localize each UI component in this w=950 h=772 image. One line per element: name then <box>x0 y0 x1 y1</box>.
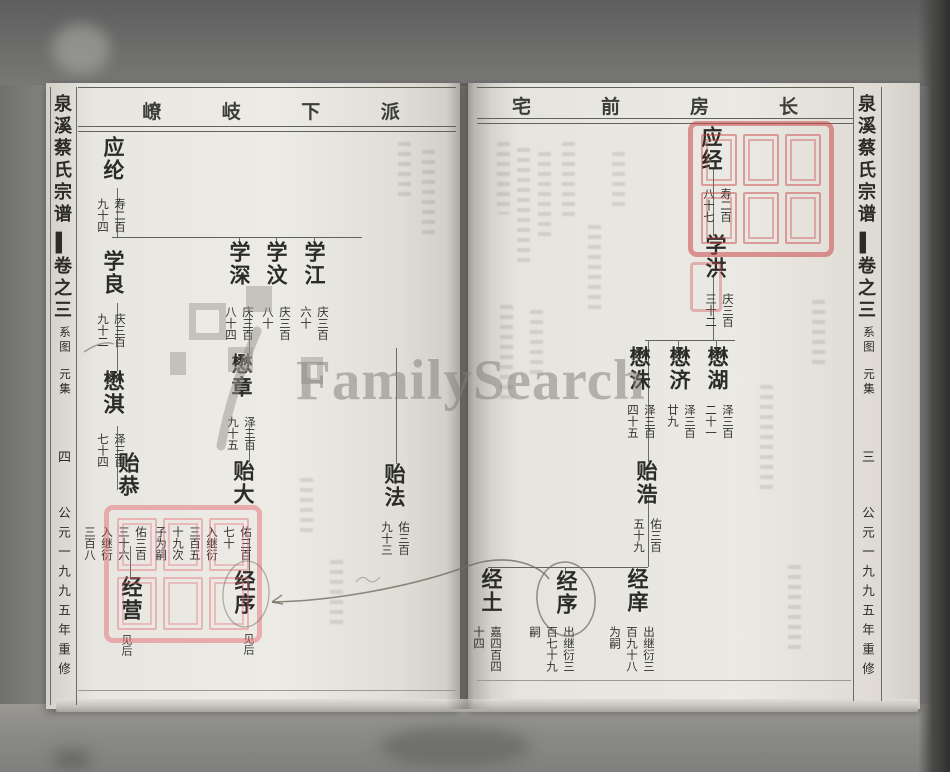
bleed-through-text <box>612 152 625 210</box>
photo-background-top <box>0 0 950 86</box>
red-archive-seal-top-right <box>688 121 834 257</box>
bleed-through-text <box>497 142 510 214</box>
bleed-through-text <box>300 478 313 538</box>
bleed-through-text <box>422 150 435 238</box>
left-page-header: 嶛 岐 下 派 <box>112 97 430 125</box>
annotation-jing-tu: 嘉四百四 十四 <box>469 626 503 684</box>
annotation-xue-shen: 庆三百 八十四 <box>221 306 255 350</box>
bleed-through-text <box>788 565 801 650</box>
left-spine-section: 系图 <box>56 326 72 355</box>
right-spine-section: 系图 <box>860 326 876 355</box>
familysearch-logo-square <box>170 352 186 375</box>
tree-node-jing-xiang: 经庠 <box>625 568 649 614</box>
annotation-mao-ji: 泽三百 廿九 <box>663 404 697 448</box>
right-page-number: 三 <box>859 450 877 463</box>
bleed-through-text <box>760 385 773 495</box>
bleed-through-text <box>517 148 530 266</box>
sibling-line-mao-generation <box>645 340 735 341</box>
right-spine-volume: ▌卷之三 <box>857 232 879 322</box>
tree-node-jing-tu: 经土 <box>479 568 503 614</box>
header-char: 下 <box>271 97 351 125</box>
header-char: 岐 <box>192 97 272 125</box>
annotation-mao-zhang: 泽三百 九十五 <box>223 416 257 460</box>
annotation-xue-liang: 庆三百 九十二 <box>93 313 127 357</box>
header-char: 宅 <box>477 92 566 120</box>
tree-node-jing-xu-right: 经序 <box>554 570 578 616</box>
bleed-through-text <box>562 142 575 218</box>
left-header-rule-1 <box>78 126 456 127</box>
right-spine-collection: 元集 <box>860 368 876 397</box>
tree-node-yi-fa: 贻法 <box>382 463 406 509</box>
right-page-header: 宅 前 房 长 <box>477 92 833 120</box>
right-frame-top-line <box>477 87 854 88</box>
tree-node-yi-gong: 贻恭 <box>116 452 140 498</box>
familysearch-logo-square <box>246 286 272 312</box>
tree-node-xue-jiang: 学江 <box>302 241 326 287</box>
right-spine-edition: 公元一九九五年重修 <box>859 506 877 682</box>
familysearch-watermark: FamilySearch <box>296 348 646 413</box>
left-spine-rule-inner <box>76 87 77 705</box>
left-header-rule-2 <box>78 131 456 132</box>
bleed-through-text <box>398 142 411 202</box>
annotation-xue-wen: 庆三百 八十 <box>258 306 292 350</box>
header-char: 派 <box>351 97 431 125</box>
left-frame-top-line <box>78 87 456 88</box>
familysearch-logo-square <box>189 303 226 340</box>
header-char: 房 <box>655 92 744 120</box>
background-highlight-blob <box>52 24 110 74</box>
header-char: 嶛 <box>112 97 192 125</box>
annotation-xue-jiang: 庆三百 六十 <box>296 306 330 350</box>
photo-background-left <box>0 85 47 710</box>
bleed-through-text <box>812 300 825 365</box>
annotation-mao-hu: 泽三百 二十一 <box>701 404 735 448</box>
tree-node-xue-wen: 学汶 <box>264 241 288 287</box>
left-frame-bottom-line <box>78 690 456 691</box>
sibling-line-xue-generation <box>112 237 362 238</box>
annotation-yi-fa: 佑三百 九十三 <box>377 521 411 565</box>
tree-node-yi-da: 贻大 <box>231 460 255 506</box>
header-char: 前 <box>566 92 655 120</box>
bleed-through-text <box>538 152 551 238</box>
annotation-yi-hao: 佑三百 五十九 <box>629 518 663 562</box>
background-shadow-blob-2 <box>52 748 92 770</box>
red-archive-seal-bottom-left <box>104 505 262 643</box>
tree-node-mao-ji: 懋济 <box>667 346 691 392</box>
left-spine-edition: 公元一九九五年重修 <box>55 506 73 682</box>
bleed-through-text <box>588 225 601 313</box>
right-spine-title: 泉溪蔡氏宗谱 <box>857 94 879 226</box>
right-spine-rule-outer <box>881 87 882 701</box>
tree-node-xue-liang: 学良 <box>101 250 125 296</box>
tree-node-ying-lun: 应纶 <box>101 136 125 182</box>
scanned-genealogy-photo: 嶛 岐 下 派 宅 前 房 长 泉溪蔡氏宗谱 ▌卷之三 系图 元集 四 公元一九… <box>0 0 950 772</box>
sibling-line-jing-generation <box>488 567 648 568</box>
background-shadow-blob <box>380 726 530 766</box>
left-spine-title: 泉溪蔡氏宗谱 <box>53 94 75 226</box>
annotation-jing-xu-right: 出继衍三 百七十九 嗣 <box>525 626 576 684</box>
left-spine-collection: 元集 <box>56 368 72 397</box>
header-char: 长 <box>744 92 833 120</box>
familysearch-logo-square <box>228 347 253 372</box>
annotation-jing-xiang: 出继衍三 百九十八 为嗣 <box>605 626 656 684</box>
red-seal-fragment <box>690 262 722 312</box>
tree-node-mao-qi: 懋淇 <box>101 370 125 416</box>
annotation-ying-lun: 寿二百 九十四 <box>93 198 127 242</box>
left-spine-volume: ▌卷之三 <box>53 232 75 322</box>
tree-node-xue-shen: 学深 <box>227 241 251 287</box>
left-page-number: 四 <box>55 450 73 463</box>
tree-node-yi-hao: 贻浩 <box>634 460 658 506</box>
photo-background-right <box>918 0 950 772</box>
bleed-through-text <box>330 560 343 630</box>
tree-node-mao-hu: 懋湖 <box>705 346 729 392</box>
